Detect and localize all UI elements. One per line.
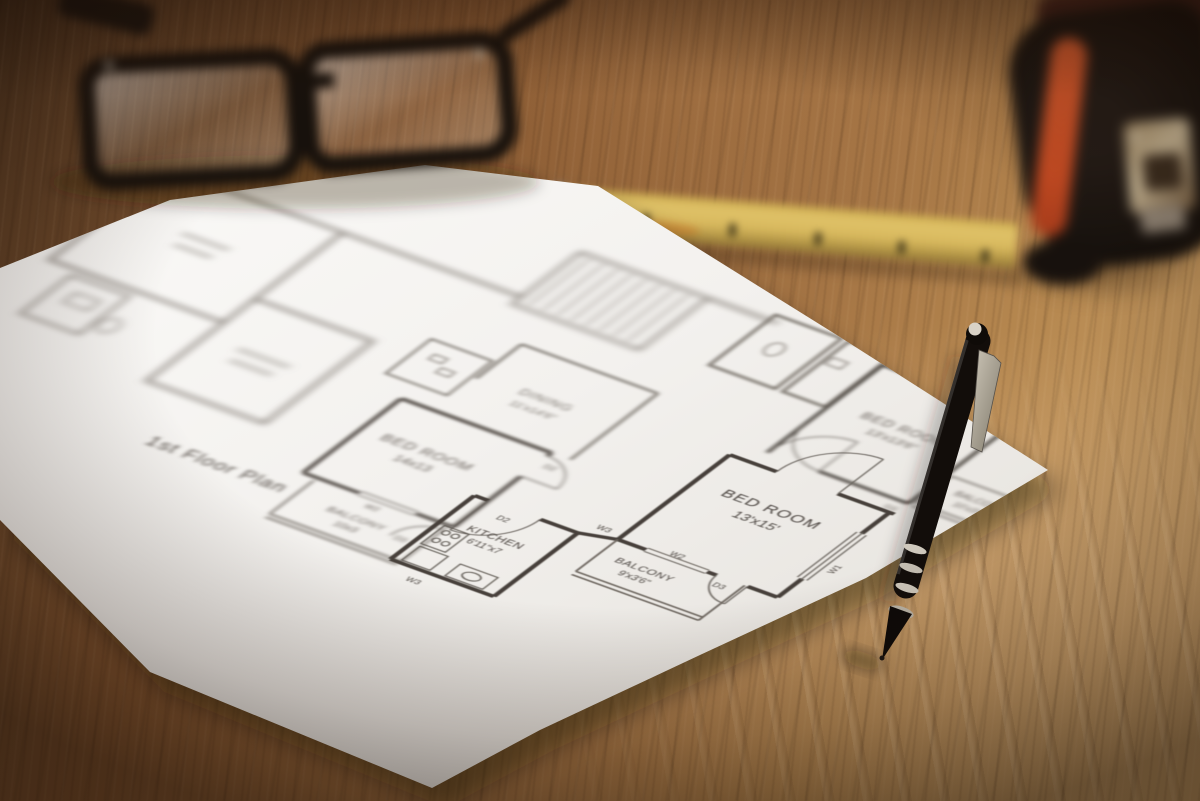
pen-ball-tip <box>880 656 885 661</box>
ballpoint-pen <box>0 0 1200 801</box>
pen-tip-cone <box>882 606 912 660</box>
pen-top-jewel <box>969 323 982 336</box>
photo-floor-plan-on-desk: BED ROOM 14x13 BALCONY 10x3 DINING 11'x1… <box>0 0 1200 801</box>
pen-group <box>880 323 1002 661</box>
